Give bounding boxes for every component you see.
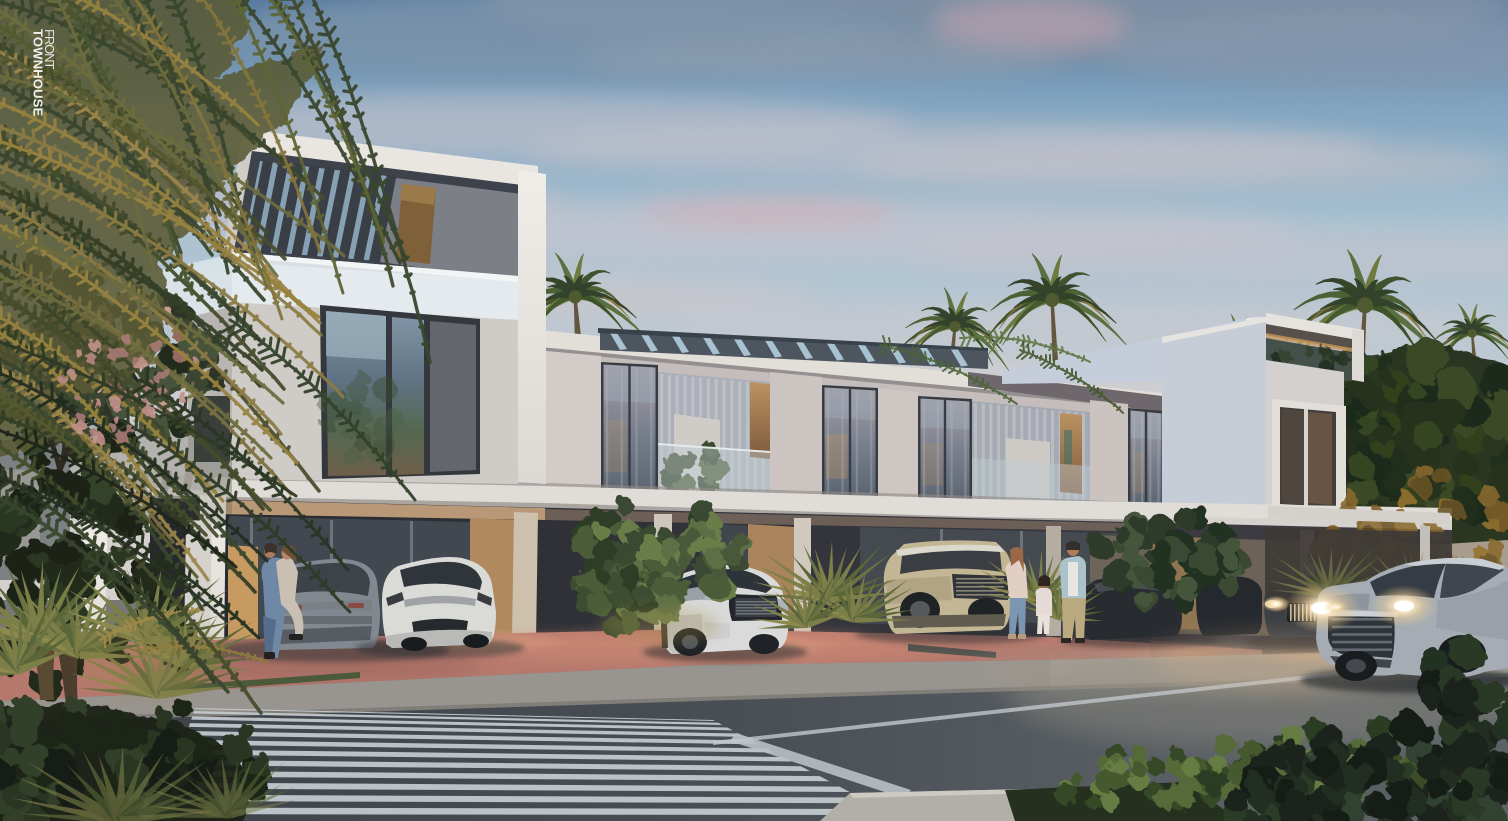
svg-text:FRONT: FRONT [42,29,57,69]
